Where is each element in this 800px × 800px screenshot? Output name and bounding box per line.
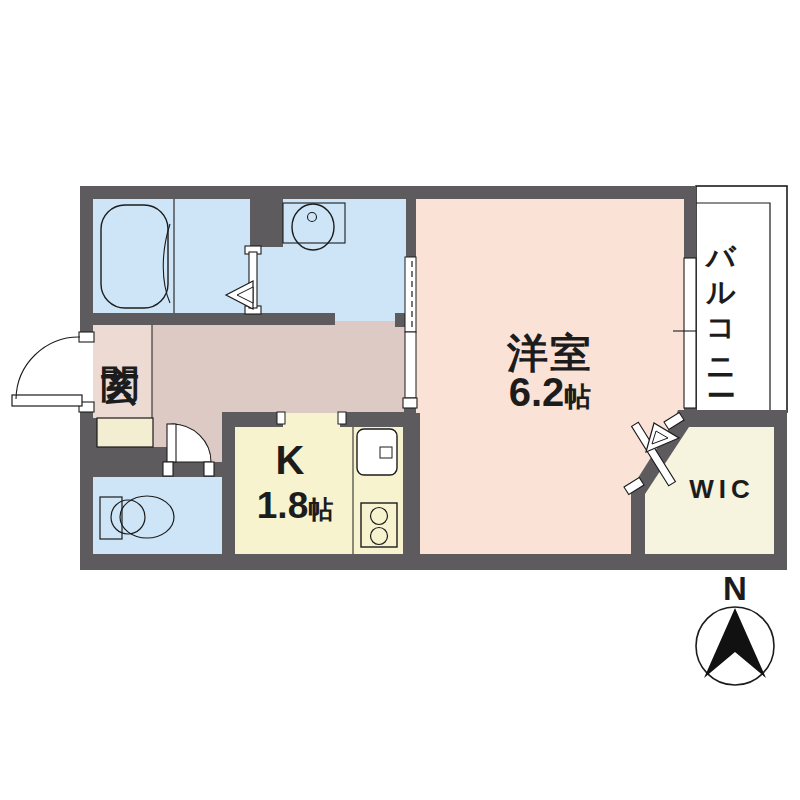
- wall-washzone-south-left: [93, 313, 335, 325]
- door-jamb: [338, 412, 346, 424]
- floor-plan-canvas: 玄関 洋室 6.2帖 K 1.8帖 バルコニー WIC N: [0, 0, 800, 800]
- wall-toilet-top-stub: [213, 462, 235, 477]
- wall-westroom-left-upper: [406, 199, 415, 258]
- genkan-room-label: 玄関: [99, 334, 139, 338]
- wic-room-label: WIC: [672, 476, 772, 503]
- door-jamb: [277, 412, 285, 424]
- wall-bath-washroom: [250, 199, 283, 247]
- door-jamb: [79, 332, 94, 342]
- room-genkan: [93, 325, 152, 418]
- entrance-door-swing-arc: [16, 337, 80, 399]
- washroom-opening-floor: [335, 313, 395, 321]
- western-room-size-number: 6.2: [509, 370, 565, 414]
- kitchen-sink: [357, 429, 397, 475]
- toilet-door-leaf: [167, 424, 176, 462]
- entrance-door-leaf: [12, 395, 82, 406]
- compass: [696, 607, 774, 685]
- kitchen-room-size: 1.8帖: [225, 487, 365, 526]
- wall-bottom-right: [684, 554, 787, 570]
- shoe-cabinet: [97, 418, 153, 447]
- balcony-room-label: バルコニー: [706, 224, 736, 386]
- compass-north-label: N: [710, 572, 760, 607]
- wall-toilet-top: [93, 447, 167, 477]
- door-jamb: [204, 462, 214, 476]
- entrance-opening: [80, 342, 93, 402]
- north-arrow-icon: [704, 608, 766, 678]
- wall-kitchen-left: [222, 412, 235, 554]
- door-jamb: [403, 398, 417, 408]
- door-jamb: [163, 462, 173, 476]
- room-toilet: [93, 477, 222, 554]
- western-room-label: 洋室: [450, 332, 650, 375]
- wall-kitchen-top-right: [340, 412, 406, 427]
- westroom-window: [684, 258, 696, 408]
- floor-plan-drawing: [0, 0, 800, 800]
- western-room-size: 6.2帖: [450, 371, 650, 413]
- kitchen-room-size-unit: 帖: [308, 495, 333, 523]
- westroom-sliding-door: [405, 332, 416, 398]
- kitchen-room-size-number: 1.8: [257, 485, 308, 526]
- kitchen-room-label: K: [233, 439, 347, 481]
- western-room-size-unit: 帖: [564, 382, 591, 412]
- wall-kitchen-right: [403, 413, 420, 554]
- westroom-sliding-door-track: [405, 257, 416, 332]
